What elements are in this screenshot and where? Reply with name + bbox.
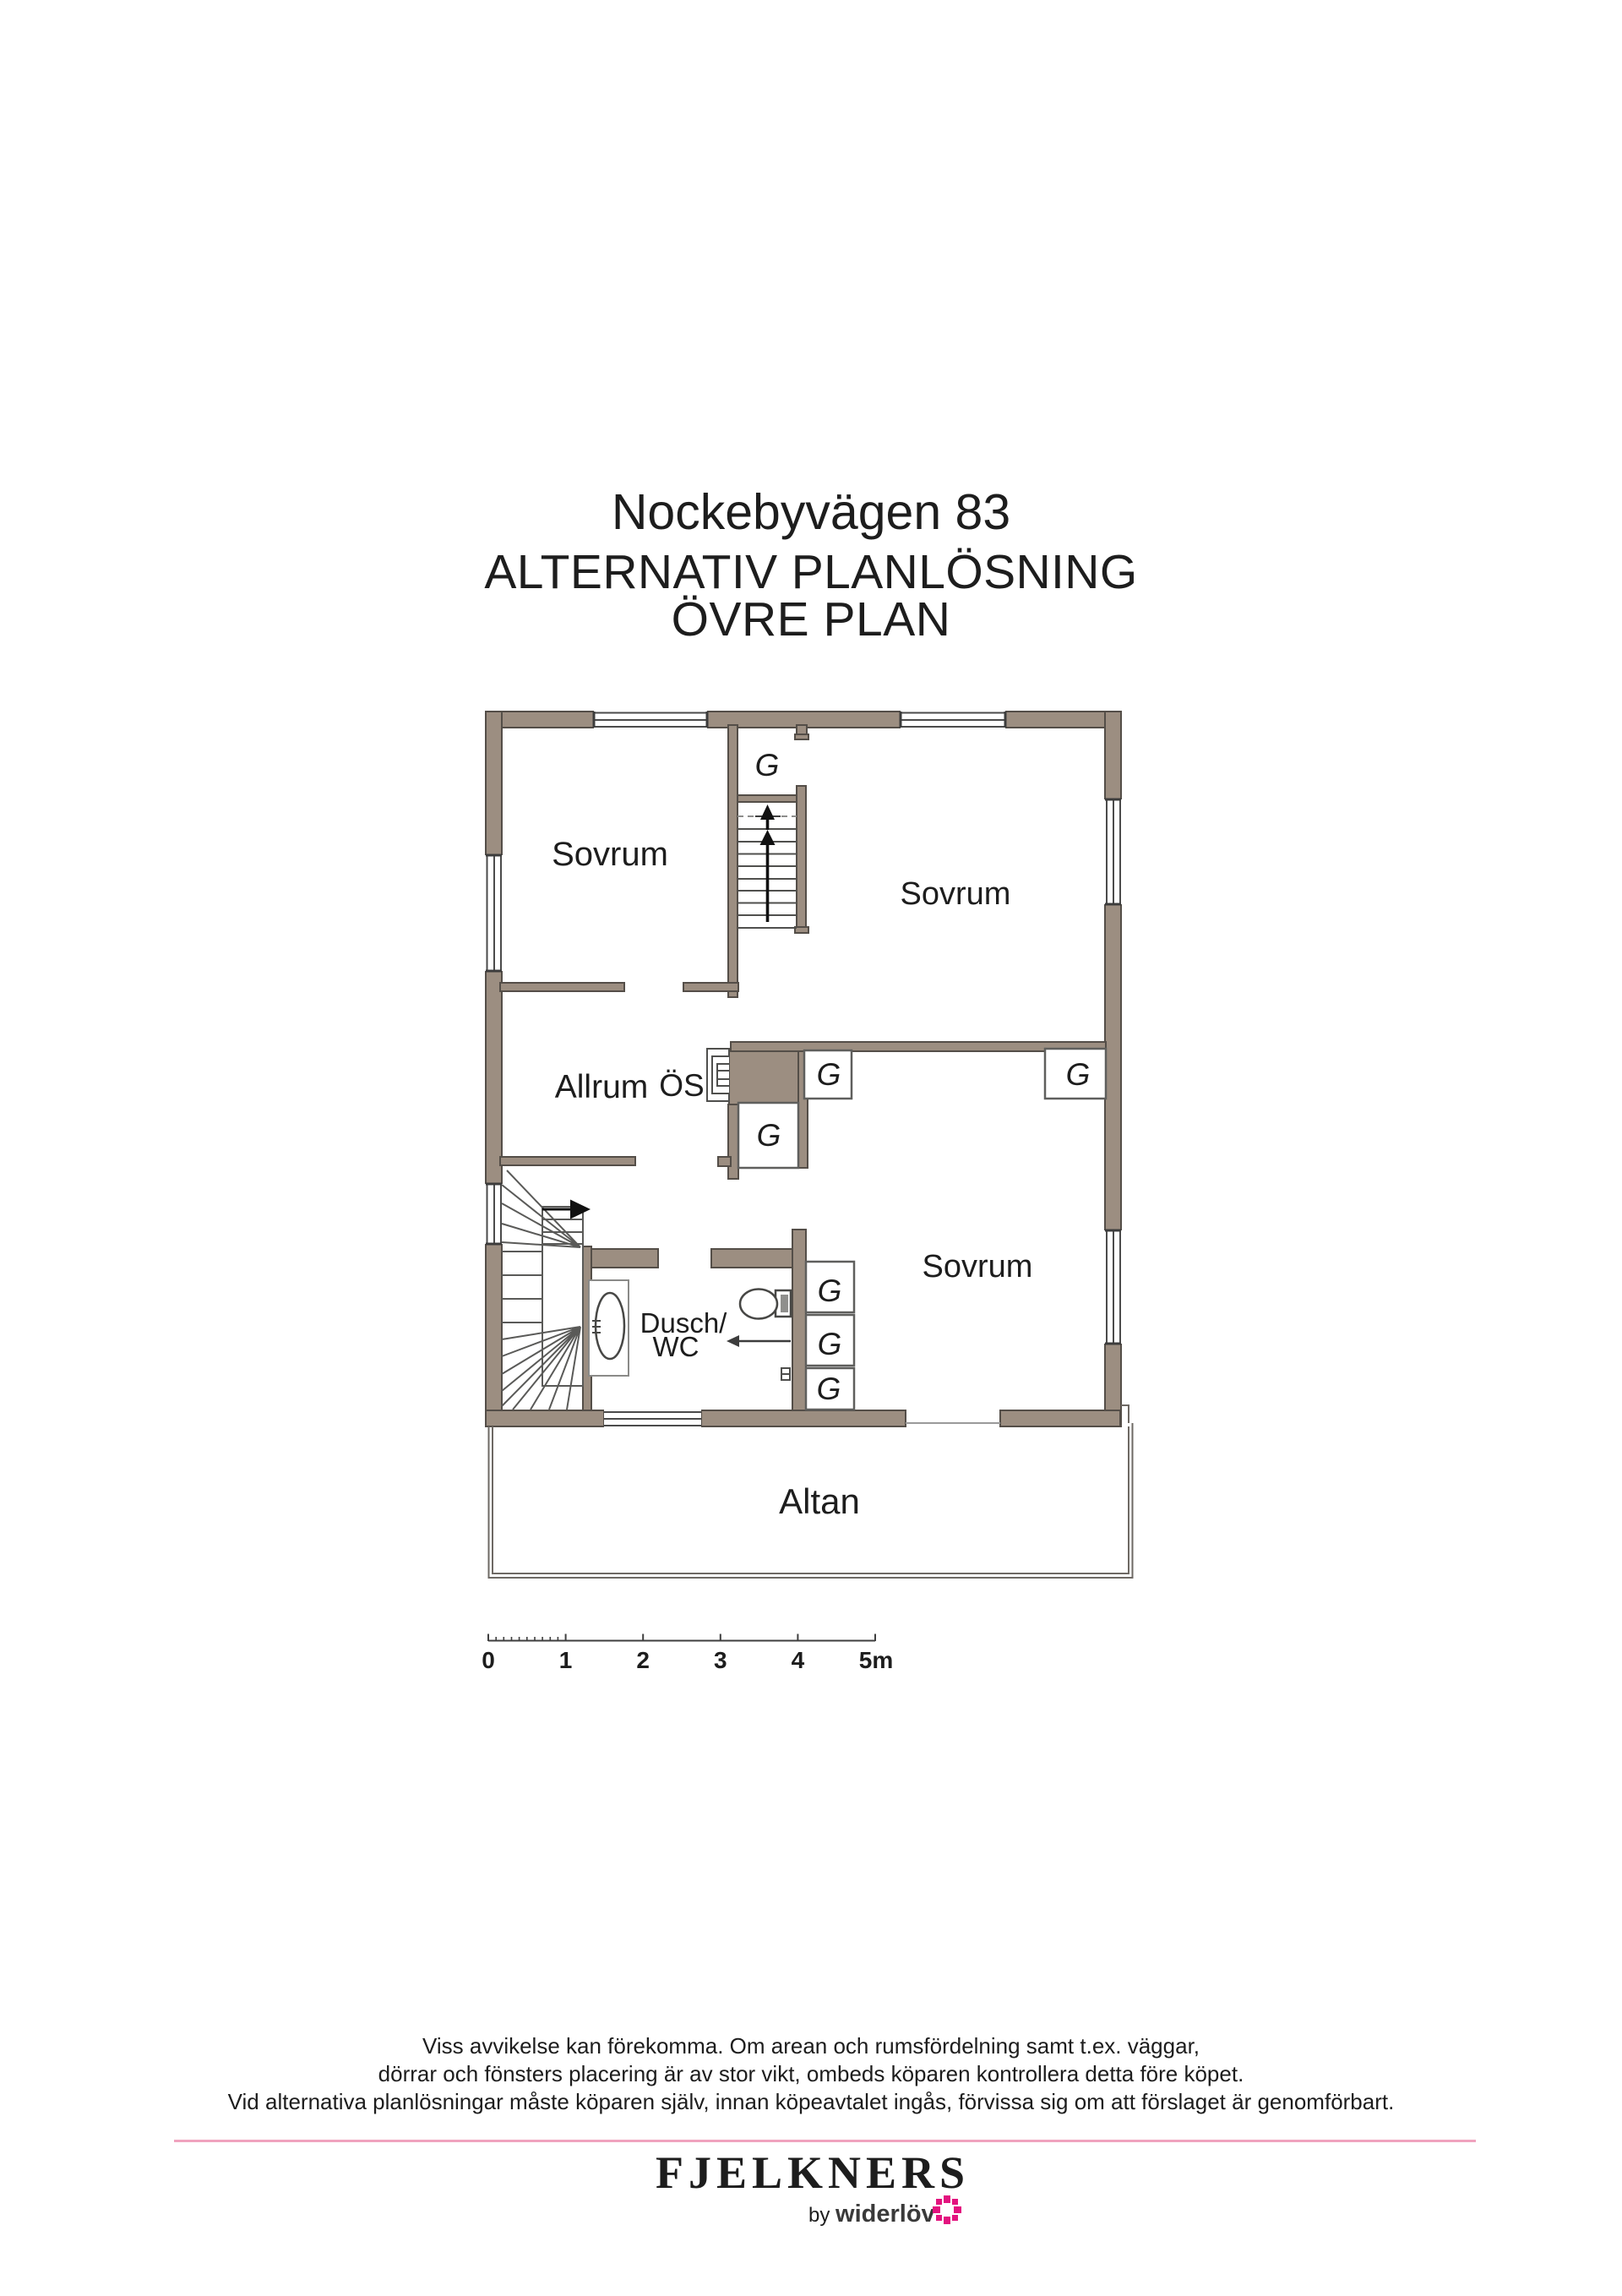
svg-text:G: G: [818, 1273, 842, 1308]
svg-text:3: 3: [714, 1647, 727, 1673]
svg-text:G: G: [817, 1372, 841, 1406]
svg-text:1: 1: [559, 1647, 573, 1673]
svg-text:Viss avvikelse kan förekomma.: Viss avvikelse kan förekomma. Om arean o…: [422, 2033, 1200, 2059]
svg-text:Vid alternativa planlösningar: Vid alternativa planlösningar måste köpa…: [228, 2089, 1395, 2114]
svg-text:by widerlöv: by widerlöv: [808, 2201, 935, 2228]
svg-text:Sovrum: Sovrum: [552, 836, 668, 873]
svg-text:FJELKNERS: FJELKNERS: [656, 2147, 970, 2198]
svg-text:Sovrum: Sovrum: [923, 1249, 1033, 1284]
svg-text:G: G: [818, 1327, 842, 1361]
svg-text:Altan: Altan: [779, 1481, 860, 1521]
svg-text:4: 4: [792, 1647, 805, 1673]
svg-text:Allrum: Allrum: [555, 1069, 649, 1105]
svg-text:ÖS: ÖS: [659, 1068, 704, 1103]
svg-text:dörrar och fönsters placering: dörrar och fönsters placering är av stor…: [378, 2061, 1244, 2086]
svg-text:2: 2: [636, 1647, 650, 1673]
svg-text:0: 0: [482, 1647, 495, 1673]
svg-text:5m: 5m: [859, 1647, 893, 1673]
svg-text:G: G: [755, 748, 780, 783]
svg-text:G: G: [1066, 1057, 1091, 1092]
svg-text:G: G: [757, 1118, 781, 1153]
svg-text:WC: WC: [653, 1331, 699, 1362]
svg-text:ALTERNATIV PLANLÖSNING: ALTERNATIV PLANLÖSNING: [484, 545, 1137, 599]
svg-text:Nockebyvägen 83: Nockebyvägen 83: [612, 484, 1010, 540]
svg-text:G: G: [817, 1057, 841, 1092]
svg-text:Sovrum: Sovrum: [901, 876, 1011, 912]
svg-text:ÖVRE PLAN: ÖVRE PLAN: [672, 592, 951, 646]
